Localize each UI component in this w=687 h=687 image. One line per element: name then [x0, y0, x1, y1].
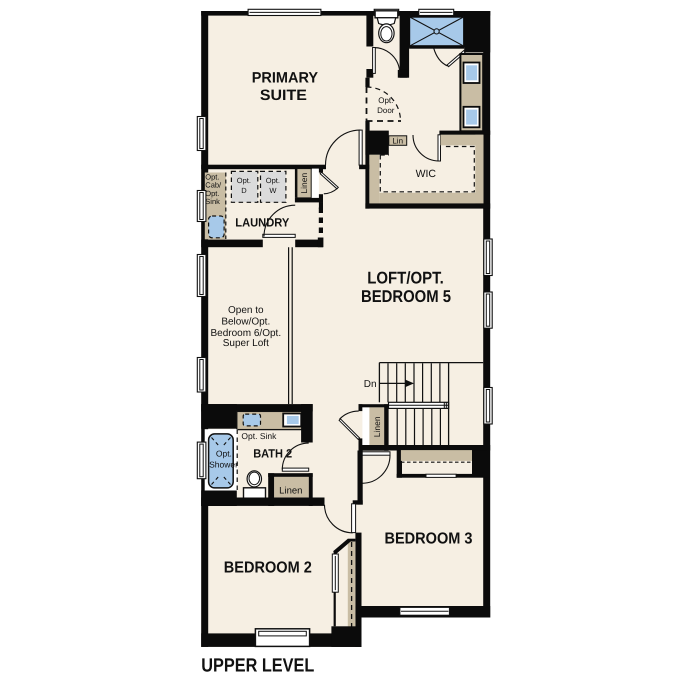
svg-text:WIC: WIC — [416, 168, 437, 180]
svg-text:Linen: Linen — [299, 173, 309, 194]
svg-text:BEDROOM 3: BEDROOM 3 — [385, 531, 473, 548]
svg-text:Below/Opt.: Below/Opt. — [221, 317, 270, 328]
svg-text:LAUNDRY: LAUNDRY — [235, 215, 289, 229]
svg-text:Lin: Lin — [392, 137, 403, 146]
svg-text:Opt.: Opt. — [216, 448, 232, 458]
svg-text:Opt.: Opt. — [378, 96, 393, 105]
svg-text:LOFT/OPT.: LOFT/OPT. — [367, 268, 444, 287]
svg-text:Open to: Open to — [228, 305, 264, 316]
svg-text:D: D — [241, 186, 247, 195]
svg-text:Opt.: Opt. — [266, 176, 280, 185]
svg-text:Door: Door — [377, 106, 395, 115]
svg-text:Linen: Linen — [279, 486, 302, 497]
svg-text:W: W — [269, 186, 277, 195]
svg-text:SUITE: SUITE — [260, 87, 307, 104]
svg-text:BEDROOM 5: BEDROOM 5 — [361, 287, 451, 306]
svg-text:BEDROOM 2: BEDROOM 2 — [224, 559, 312, 576]
svg-text:BATH 2: BATH 2 — [253, 446, 292, 460]
svg-text:Opt. Sink: Opt. Sink — [241, 431, 277, 441]
svg-text:PRIMARY: PRIMARY — [252, 69, 318, 86]
svg-text:Linen: Linen — [372, 416, 382, 437]
svg-text:Super Loft: Super Loft — [223, 338, 269, 349]
svg-text:Opt.: Opt. — [237, 176, 251, 185]
svg-text:Shower: Shower — [209, 459, 238, 469]
svg-text:Sink: Sink — [205, 197, 220, 206]
svg-text:UPPER LEVEL: UPPER LEVEL — [201, 656, 314, 677]
svg-text:Dn: Dn — [364, 379, 377, 390]
